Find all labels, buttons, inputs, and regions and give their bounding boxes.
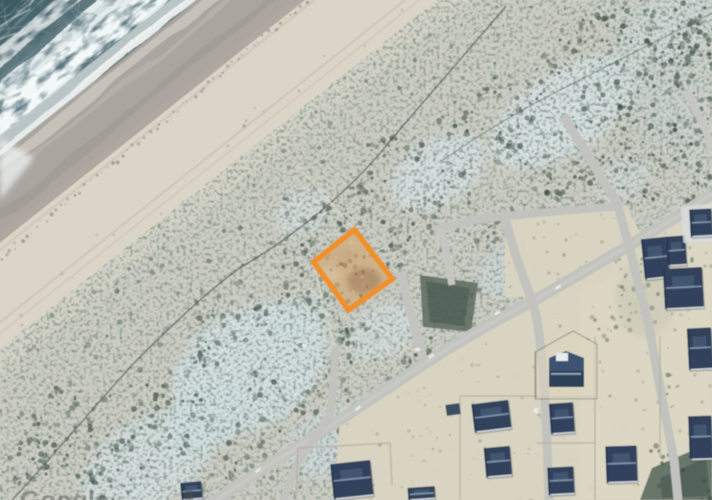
svg-text:Google: Google <box>20 485 110 500</box>
